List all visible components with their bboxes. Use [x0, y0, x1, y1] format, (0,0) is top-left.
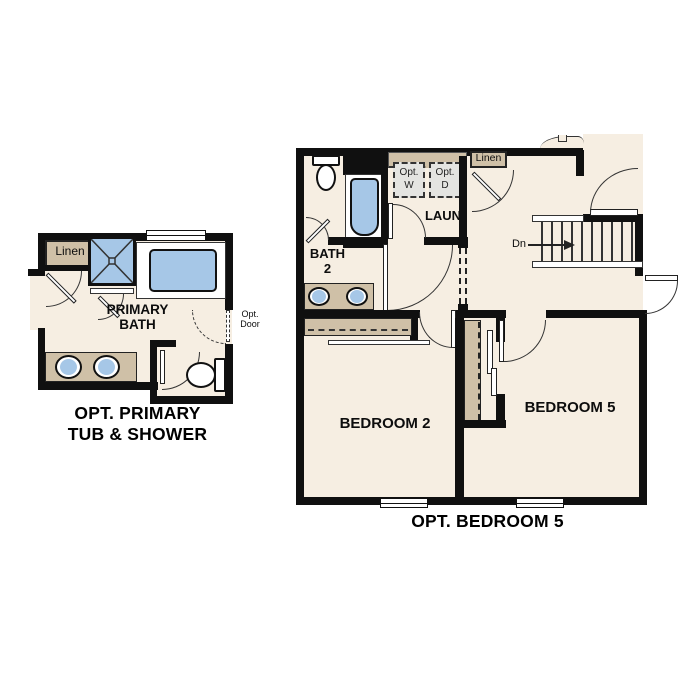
- wall: [546, 310, 647, 318]
- wall: [296, 497, 647, 505]
- primary-bath-entry-floor: [30, 275, 40, 330]
- toilet-bowl: [186, 362, 216, 388]
- stairs-down-label: Dn: [508, 238, 530, 250]
- wall: [455, 318, 464, 505]
- wall: [576, 150, 584, 176]
- wall: [150, 340, 157, 400]
- wall: [38, 241, 45, 271]
- bedroom2-closet-shelf: [304, 318, 412, 336]
- window: [146, 230, 206, 241]
- window: [380, 498, 428, 508]
- cut-edge-floor: [583, 134, 643, 150]
- shelf-dashed-line: [478, 322, 480, 420]
- sink-basin: [312, 290, 326, 303]
- stairs-arrow-head: [564, 240, 575, 250]
- bedroom2-label: BEDROOM 2: [310, 416, 460, 433]
- shower-x-icon: [91, 239, 133, 283]
- opt-door-leaf: [226, 310, 230, 342]
- closet-rod: [328, 340, 430, 345]
- cutoff-notch: [558, 135, 567, 142]
- wall: [381, 156, 388, 244]
- opt-dryer: Opt. D: [429, 162, 461, 198]
- bath2-label-line2: 2: [300, 262, 355, 277]
- wall: [455, 310, 506, 318]
- stairs-landing-edge: [532, 261, 643, 268]
- toilet-bowl: [316, 164, 336, 191]
- wall: [459, 156, 467, 244]
- primary-bath-label-line2: BATH: [70, 317, 205, 332]
- left-plan-title-line2: TUB & SHOWER: [30, 424, 245, 445]
- opt-door-label: Opt. Door: [234, 310, 266, 330]
- lower-hall-door-arc: [645, 281, 678, 314]
- wall: [225, 233, 233, 310]
- floorplan-canvas: Linen PRIMARY BATH Opt. Door: [0, 0, 687, 687]
- bath2-label: BATH 2: [300, 247, 355, 276]
- wall: [296, 148, 304, 505]
- wall: [296, 310, 420, 318]
- primary-bath-label-line1: PRIMARY: [70, 302, 205, 317]
- wall: [38, 382, 158, 390]
- wall: [28, 269, 45, 276]
- right-plan-title: OPT. BEDROOM 5: [360, 511, 615, 532]
- window: [516, 498, 564, 508]
- sink-basin: [350, 290, 364, 303]
- opt-washer: Opt. W: [393, 162, 425, 198]
- stairs-arrow: [528, 244, 566, 246]
- left-plan-title-line1: OPT. PRIMARY: [30, 403, 245, 424]
- tub: [149, 249, 217, 292]
- closet-slider-panel: [491, 368, 497, 396]
- wall: [150, 340, 176, 347]
- bath2-label-line1: BATH: [300, 247, 355, 262]
- opt-door-label-line2: Door: [234, 320, 266, 330]
- sink-basin: [60, 359, 77, 375]
- left-plan-title: OPT. PRIMARY TUB & SHOWER: [30, 403, 245, 444]
- wall: [328, 237, 385, 245]
- tub: [350, 178, 379, 236]
- wall: [458, 237, 468, 248]
- cased-opening: [459, 248, 461, 304]
- shelf-dashed-line: [308, 329, 408, 331]
- opt-washer-line1: Opt.: [395, 167, 423, 180]
- bedroom5-label: BEDROOM 5: [495, 400, 645, 417]
- stairs-railing: [532, 215, 584, 222]
- cased-opening: [465, 248, 467, 304]
- wall: [225, 344, 233, 404]
- shower: [88, 236, 136, 286]
- sink-basin: [98, 359, 115, 375]
- wall: [38, 328, 45, 390]
- opt-dryer-line2: D: [431, 180, 459, 193]
- linen-label: Linen: [470, 153, 507, 165]
- primary-bath-label: PRIMARY BATH: [70, 302, 205, 332]
- opt-dryer-line1: Opt.: [431, 167, 459, 180]
- opt-washer-line2: W: [395, 180, 423, 193]
- chase: [343, 148, 383, 175]
